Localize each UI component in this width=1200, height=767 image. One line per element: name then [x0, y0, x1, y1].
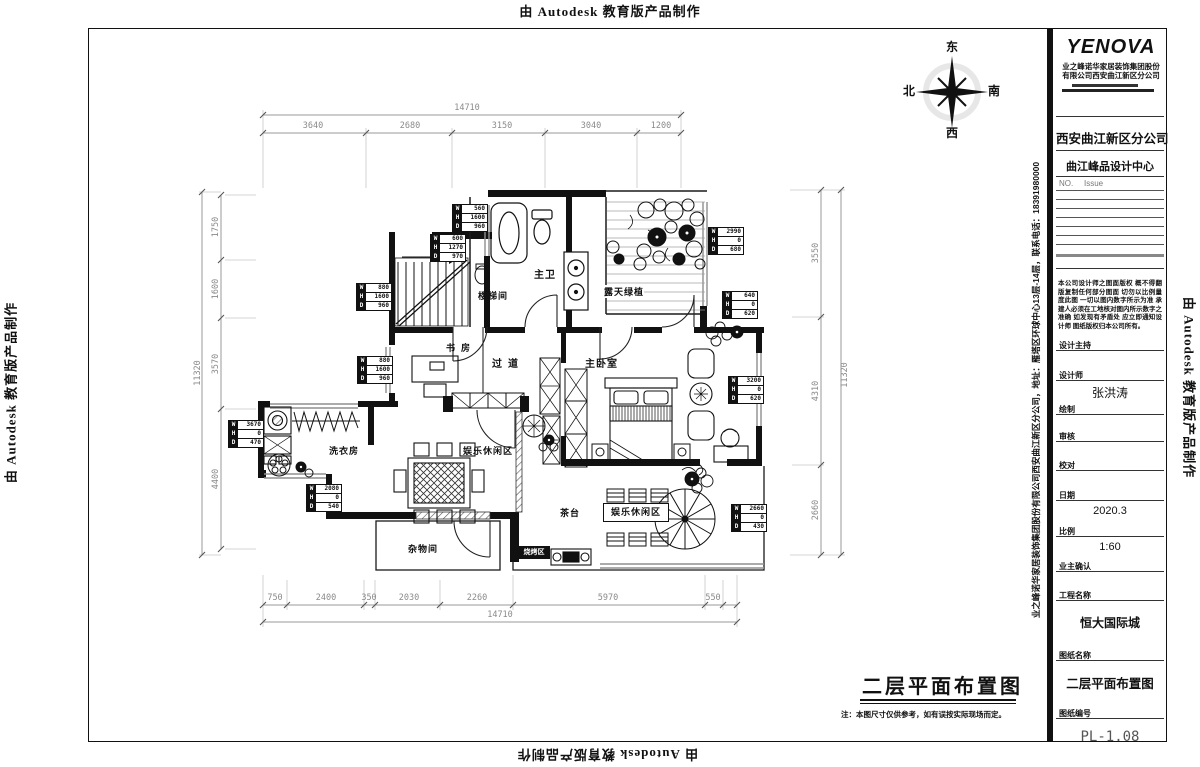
window-tag-key: H	[357, 293, 366, 301]
issue-table-thick-line	[1056, 254, 1164, 257]
window-tag-key: D	[732, 523, 741, 531]
window-tag-key: D	[453, 223, 462, 231]
room-label-entertainment-indoor: 娱乐休闲区	[463, 444, 513, 457]
dim-left-seg: 3570	[211, 354, 221, 374]
issue-table-lines	[1056, 190, 1164, 252]
window-tag: W600H1270D970	[430, 234, 466, 262]
titleblock-rule	[1056, 500, 1164, 501]
plan-title-rule	[860, 703, 1016, 704]
dim-right-seg: 2660	[811, 500, 821, 520]
company-smallprint-bar	[1072, 84, 1138, 87]
window-tag-key: W	[729, 377, 738, 385]
window-tag-value: 620	[738, 395, 763, 403]
titleblock-rule	[1056, 571, 1164, 572]
window-tag-key: W	[709, 228, 718, 236]
room-label-tea-table: 茶台	[560, 506, 580, 519]
window-tag-value: 430	[741, 523, 766, 531]
window-tag-key: D	[729, 395, 738, 403]
dim-left-seg: 1750	[211, 217, 221, 237]
window-tag-key: W	[732, 505, 741, 513]
window-tag-value: 3670	[238, 421, 263, 429]
company-info-vertical: 业之峰诺华家居装饰集团股份有限公司西安曲江新区分公司，地址：雁塔区环球中心13层…	[1030, 80, 1042, 700]
window-tag-value: 0	[238, 430, 263, 438]
window-tag-value: 960	[367, 375, 392, 383]
window-tag-key: H	[229, 430, 238, 438]
plan-note: 注：本图尺寸仅供参考，如有误按实际现场而定。	[841, 709, 1006, 720]
window-tag-value: 880	[366, 284, 391, 292]
company-smallprint-bar	[1062, 89, 1154, 92]
window-tag-key: D	[723, 310, 732, 318]
window-tag-value: 2660	[741, 505, 766, 513]
dim-top-seg: 2680	[400, 121, 420, 131]
titleblock-rule	[1056, 441, 1164, 442]
dim-top-overall: 14710	[454, 103, 480, 113]
dim-top-seg: 1200	[651, 121, 671, 131]
window-tag-key: W	[358, 357, 367, 365]
window-tag-key: D	[431, 253, 440, 261]
room-label-storage: 杂物间	[408, 542, 438, 555]
window-tag: W2080H0D540	[306, 484, 342, 512]
window-tag-key: H	[732, 514, 741, 522]
plan-title-rule	[860, 699, 1016, 701]
room-label-bbq: 烧烤区	[518, 546, 550, 559]
window-tag-value: 960	[366, 302, 391, 310]
dim-bottom-seg: 350	[361, 593, 376, 603]
window-tag-key: W	[307, 485, 316, 493]
titleblock-rule	[1056, 600, 1164, 601]
window-tag: W3670H0D470	[228, 420, 264, 448]
titleblock-spine	[1047, 28, 1053, 741]
compass-south-label: 南	[988, 82, 1000, 99]
window-tag-value: 0	[741, 514, 766, 522]
titleblock-rule	[1056, 660, 1164, 661]
branch-name: 西安曲江新区分公司	[1056, 128, 1164, 147]
window-tag-value: 540	[316, 503, 341, 511]
issue-label: Issue	[1084, 179, 1103, 188]
window-tag-key: H	[307, 494, 316, 502]
dim-left-seg: 1600	[211, 279, 221, 299]
window-tag-key: D	[307, 503, 316, 511]
window-tag-key: W	[229, 421, 238, 429]
window-tag-key: W	[431, 235, 440, 243]
window-tag-value: 0	[718, 237, 743, 245]
window-tag-key: H	[453, 214, 462, 222]
window-tag-key: H	[358, 366, 367, 374]
dim-bottom-seg: 2400	[316, 593, 336, 603]
window-tag-value: 560	[462, 205, 487, 213]
window-tag: W880H1600D960	[357, 356, 393, 384]
designer-name: 张洪涛	[1056, 384, 1164, 401]
window-tag-value: 640	[732, 292, 757, 300]
compass-north-label: 北	[903, 82, 915, 99]
yenova-logo: YENOVA	[1056, 36, 1166, 59]
room-label-master-bath: 主卫	[534, 266, 556, 281]
no-label: NO.	[1059, 179, 1073, 188]
window-tag: W880H1600D960	[356, 283, 392, 311]
dim-bottom-seg: 2030	[399, 593, 419, 603]
room-label-corridor: 过道	[492, 355, 524, 370]
dim-top-seg: 3150	[492, 121, 512, 131]
window-tag-key: D	[357, 302, 366, 310]
window-tag-value: 620	[732, 310, 757, 318]
dim-bottom-seg: 2260	[467, 593, 487, 603]
titleblock-rule	[1056, 268, 1164, 269]
dim-left-seg: 4400	[211, 469, 221, 489]
dim-top-seg: 3040	[581, 121, 601, 131]
design-center-name: 曲江峰品设计中心	[1056, 158, 1164, 174]
window-tag-value: 0	[732, 301, 757, 309]
window-tag-key: D	[229, 439, 238, 447]
dim-right-seg: 4310	[811, 381, 821, 401]
compass-east-label: 东	[946, 38, 958, 55]
window-tag-value: 0	[738, 386, 763, 394]
window-tag: W2990H0D680	[708, 227, 744, 255]
window-tag-value: 1600	[366, 293, 391, 301]
window-tag-key: H	[431, 244, 440, 252]
dim-bottom-seg: 5970	[598, 593, 618, 603]
autodesk-banner-top: 由 Autodesk 教育版产品制作	[505, 1, 715, 20]
compass-west-label: 西	[946, 124, 958, 141]
cad-sheet: 由 Autodesk 教育版产品制作 由 Autodesk 教育版产品制作 由 …	[0, 0, 1200, 767]
titleblock-rule	[1056, 176, 1164, 177]
room-label-stairwell: 楼梯间	[478, 289, 508, 302]
autodesk-banner-left: 由 Autodesk 教育版产品制作	[1, 293, 20, 493]
room-label-entertainment-outdoor: 娱乐休闲区	[603, 503, 669, 522]
window-tag: W560H1600D960	[452, 204, 488, 232]
scale-value: 1:60	[1056, 541, 1164, 553]
window-tag-key: D	[358, 375, 367, 383]
autodesk-banner-right: 由 Autodesk 教育版产品制作	[1181, 288, 1200, 488]
window-tag: W3200H0D620	[728, 376, 764, 404]
dim-left-overall: 11320	[193, 360, 203, 386]
titleblock-rule	[1056, 414, 1164, 415]
drawing-name-value: 二层平面布置图	[1056, 673, 1164, 692]
room-label-master-bedroom: 主卧室	[585, 355, 618, 370]
window-tag-value: 2080	[316, 485, 341, 493]
window-tag-value: 680	[718, 246, 743, 254]
window-tag: W2660H0D430	[731, 504, 767, 532]
titleblock-rule	[1056, 718, 1164, 719]
window-tag-value: 2990	[718, 228, 743, 236]
titleblock-rule	[1056, 116, 1164, 117]
window-tag-key: W	[453, 205, 462, 213]
titleblock-rule	[1056, 350, 1164, 351]
titleblock-rule	[1056, 536, 1164, 537]
window-tag-key: H	[709, 237, 718, 245]
room-label-laundry: 洗衣房	[329, 444, 359, 457]
autodesk-banner-bottom: 由 Autodesk 教育版产品制作	[500, 746, 715, 765]
dim-bottom-seg: 550	[705, 593, 720, 603]
window-tag-value: 600	[440, 235, 465, 243]
company-name-line2: 有限公司西安曲江新区分公司	[1056, 70, 1166, 81]
plan-title: 二层平面布置图	[862, 670, 1023, 699]
window-tag-key: H	[723, 301, 732, 309]
date-value: 2020.3	[1056, 505, 1164, 517]
disclaimer-text: 本公司设计师之图面版权 概不得翻版复制任何部分图面 切勿以比例量度此图 一切以图…	[1058, 280, 1162, 331]
room-label-study: 书房	[446, 341, 476, 354]
sheet-border	[88, 28, 1167, 742]
room-label-terrace-plants: 露天绿植	[604, 285, 644, 298]
window-tag-value: 1600	[462, 214, 487, 222]
window-tag-value: 3200	[738, 377, 763, 385]
project-name-value: 恒大国际城	[1056, 614, 1164, 631]
window-tag-value: 960	[462, 223, 487, 231]
window-tag-key: H	[729, 386, 738, 394]
window-tag-value: 880	[367, 357, 392, 365]
window-tag-value: 1270	[440, 244, 465, 252]
window-tag-key: D	[709, 246, 718, 254]
dim-right-seg: 3550	[811, 243, 821, 263]
window-tag: W640H0D620	[722, 291, 758, 319]
drawing-number-value: PL-1.08	[1056, 729, 1164, 745]
titleblock-rule	[1056, 150, 1164, 151]
window-tag-value: 470	[238, 439, 263, 447]
dim-bottom-overall: 14710	[487, 610, 513, 620]
window-tag-value: 0	[316, 494, 341, 502]
dim-bottom-seg: 750	[267, 593, 282, 603]
dim-top-seg: 3640	[303, 121, 323, 131]
window-tag-key: W	[723, 292, 732, 300]
dim-right-overall: 11320	[840, 362, 850, 388]
titleblock-rule	[1056, 470, 1164, 471]
titleblock-rule	[1056, 380, 1164, 381]
window-tag-value: 1600	[367, 366, 392, 374]
window-tag-key: W	[357, 284, 366, 292]
window-tag-value: 970	[440, 253, 465, 261]
